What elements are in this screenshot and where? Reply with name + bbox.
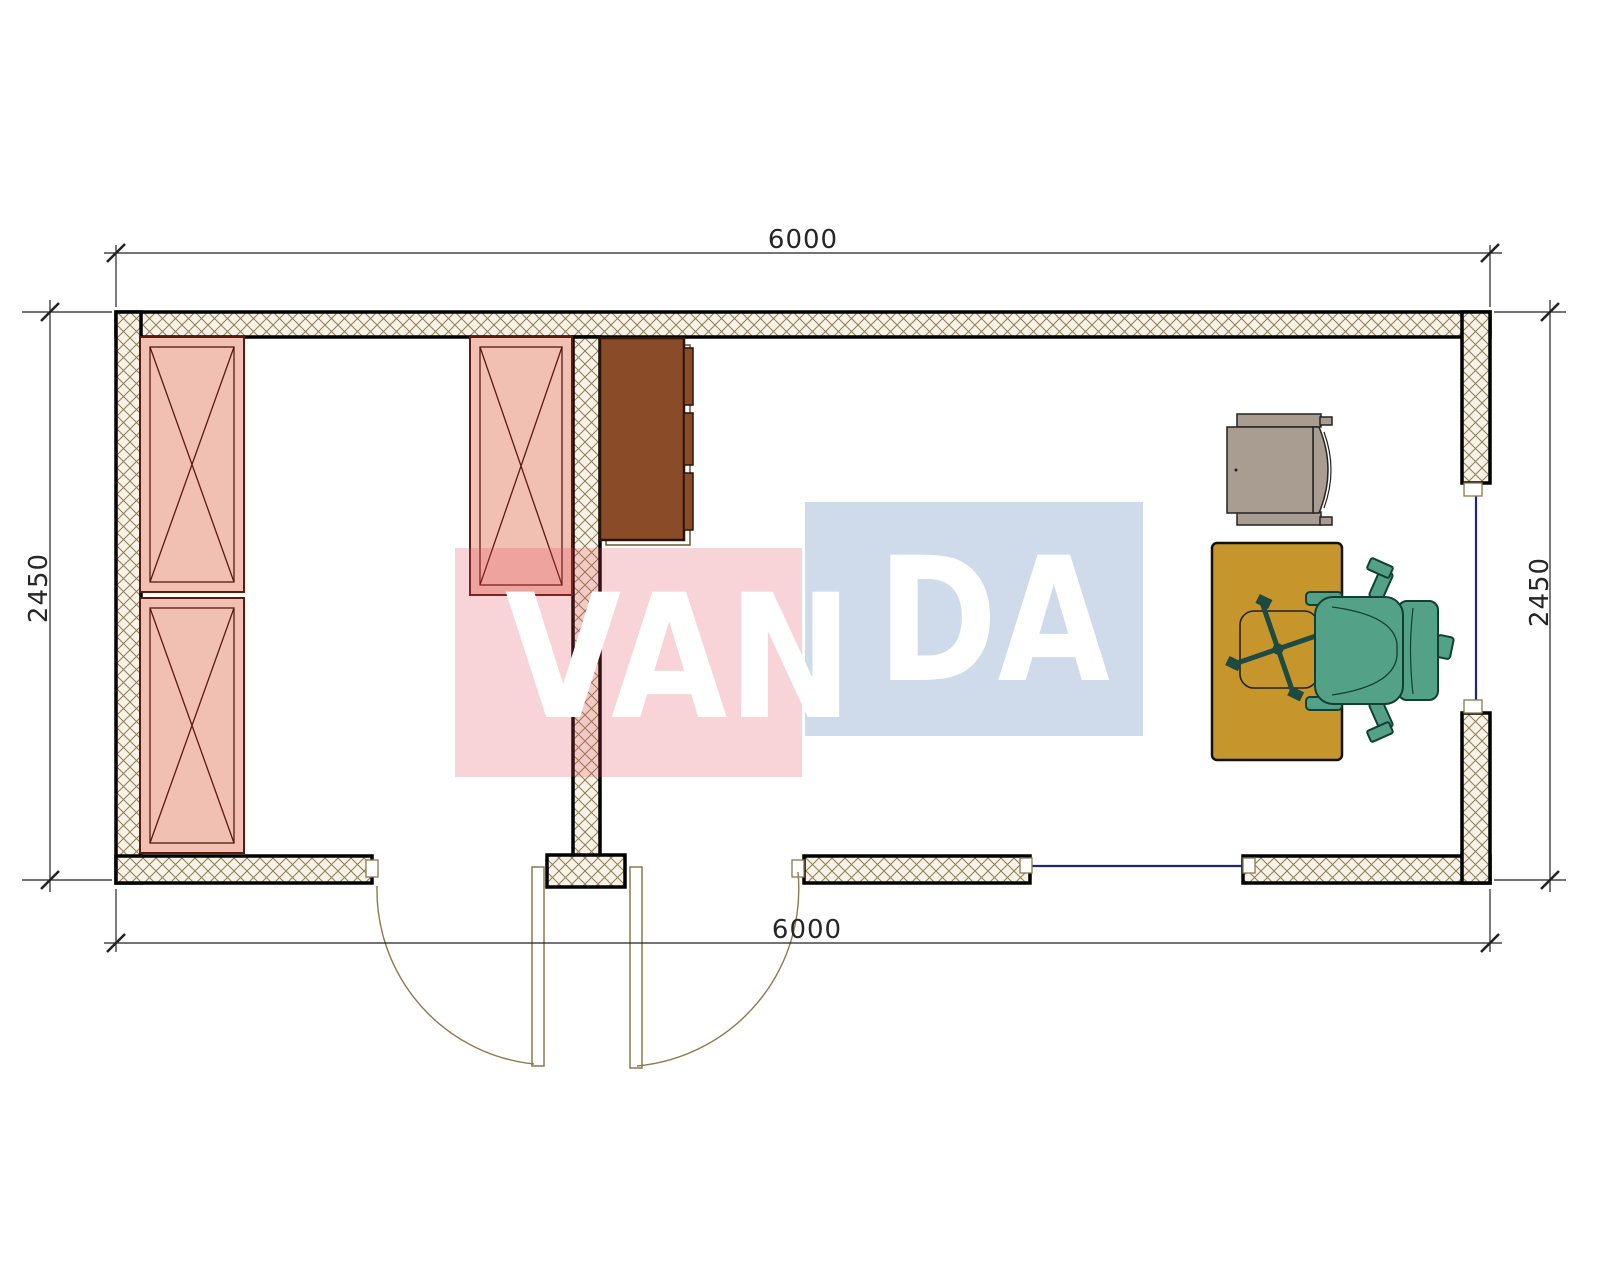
door-left-leaf bbox=[532, 867, 544, 1066]
wall-top bbox=[116, 312, 1490, 337]
door-left-swing-arc bbox=[377, 886, 534, 1064]
dimension-bottom: 6000 bbox=[104, 889, 1502, 952]
dimension-top-label: 6000 bbox=[768, 225, 838, 255]
chair-seat bbox=[1315, 597, 1403, 704]
wall-partition-stub bbox=[547, 855, 625, 887]
dimension-left: 2450 bbox=[22, 300, 112, 892]
guest-armchair bbox=[1227, 414, 1332, 525]
chair-foot-bottom bbox=[1367, 722, 1394, 743]
wall-left bbox=[116, 312, 141, 883]
cabinet-door-panel bbox=[684, 348, 693, 405]
window-east-jamb-bottom bbox=[1464, 700, 1482, 713]
dimension-bottom-label: 6000 bbox=[772, 915, 842, 945]
wall-bottom-left-segment bbox=[116, 856, 372, 883]
window-east-jamb-top bbox=[1464, 483, 1482, 496]
armchair-backrest bbox=[1313, 427, 1328, 513]
door-right-swing-arc bbox=[637, 872, 799, 1066]
cabinet bbox=[600, 338, 693, 545]
armchair-armrest-top bbox=[1237, 414, 1321, 427]
wall-right-lower-segment bbox=[1462, 713, 1490, 883]
cabinet-door-panel bbox=[684, 473, 693, 530]
doors bbox=[366, 860, 804, 1068]
armchair-armrest-cap bbox=[1320, 517, 1332, 525]
floor-plan-page: VAN DA 6000 6000 2450 bbox=[0, 0, 1600, 1280]
cabinet-body bbox=[600, 338, 684, 540]
door-right-leaf bbox=[630, 867, 642, 1068]
storage-unit-west-upper bbox=[140, 337, 244, 592]
door-left-jamb bbox=[366, 860, 378, 877]
dimension-left-label: 2450 bbox=[24, 553, 54, 623]
dimension-right-label: 2450 bbox=[1525, 557, 1555, 627]
wall-right-upper-segment bbox=[1462, 312, 1490, 483]
watermark-text-right: DA bbox=[877, 520, 1110, 721]
window-south-jamb-left bbox=[1020, 858, 1032, 873]
cabinet-door-panel bbox=[684, 413, 693, 465]
wall-bottom-middle-segment bbox=[804, 856, 1030, 883]
armchair-seat bbox=[1227, 427, 1313, 513]
dimension-top: 6000 bbox=[104, 225, 1502, 307]
armchair-armrest-bottom bbox=[1237, 512, 1321, 525]
floor-plan-drawing: VAN DA 6000 6000 2450 bbox=[0, 0, 1600, 1280]
chair-foot-top bbox=[1367, 558, 1394, 579]
armchair-seat-dot bbox=[1235, 469, 1238, 472]
window-south-jamb-right bbox=[1243, 858, 1255, 873]
storage-unit-west-lower bbox=[140, 598, 244, 853]
armchair-armrest-cap bbox=[1320, 417, 1332, 425]
wall-bottom-right-segment bbox=[1243, 856, 1490, 883]
dimension-right: 2450 bbox=[1494, 300, 1566, 892]
watermark-text-left: VAN bbox=[505, 557, 853, 758]
